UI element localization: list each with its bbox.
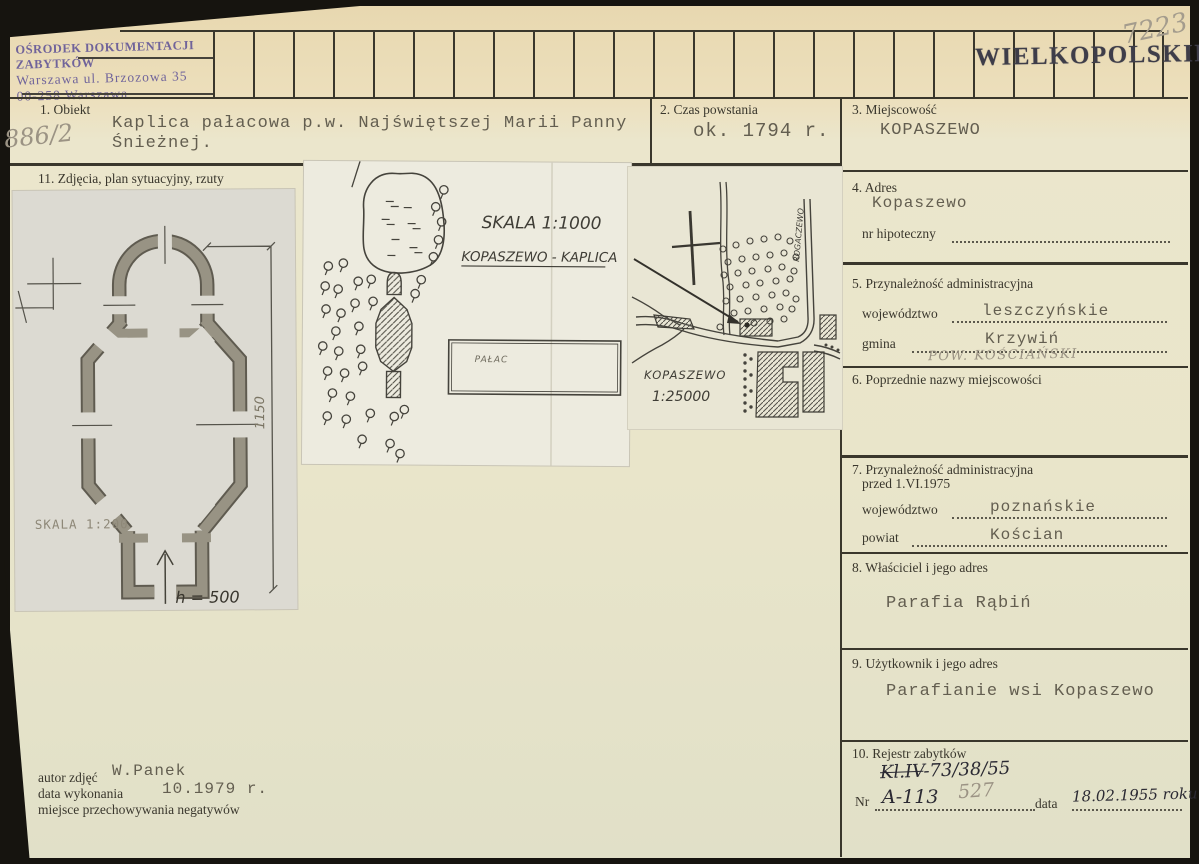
floorplan-photo-paper: 1150 SKALA 1:200 h = 500: [13, 189, 298, 611]
field-10-data-label: data: [1035, 796, 1058, 812]
field-10-nr-label: Nr: [855, 794, 869, 810]
floorplan-wall-fill: [87, 240, 241, 592]
row1-top-rule: [10, 97, 1188, 99]
siteplan-palace-outline: [448, 340, 620, 395]
stamp-field-rule-upper: [78, 57, 213, 59]
floorplan-entrance-arrow: [157, 551, 173, 604]
field-7-powiat-value: Kościan: [990, 526, 1064, 544]
floorplan-wall-outline: [87, 240, 241, 592]
voivodeship-region-stamp: WIELKOPOLSKIE: [975, 40, 1199, 72]
field-5-powiat-pencil-note: POW. KOŚCIAŃSKI: [928, 347, 1078, 365]
field-1-label: 1. Obiekt: [40, 102, 90, 118]
siteplan-drawing: PAŁAC SKALA 1:1000 KOPASZEWO - KAPLICA: [302, 161, 631, 466]
f8-bottom-rule: [840, 648, 1188, 650]
siteplan-paper: PAŁAC SKALA 1:1000 KOPASZEWO - KAPLICA: [302, 161, 631, 466]
f3-bottom-rule: [840, 170, 1188, 172]
field-9-label: 9. Użytkownik i jego adres: [852, 656, 998, 672]
stamp-field-rule-lower: [22, 93, 213, 95]
field-1-value-line2: Śnieżnej.: [112, 134, 213, 153]
negatives-location-label: miejsce przechowywania negatywów: [38, 802, 240, 818]
field-5-wojewodztwo-label: województwo: [862, 306, 938, 322]
field-3-label: 3. Miejscowość: [852, 102, 937, 118]
photo-author-value: W.Panek: [112, 762, 186, 780]
field-4-sub-label: nr hipoteczny: [862, 226, 936, 242]
siteplan-fold-crease: [550, 163, 553, 466]
siteplan-pond: [363, 173, 445, 274]
field-4-value: Kopaszewo: [872, 194, 967, 212]
siteplan-scale-label: SKALA 1:1000: [482, 213, 602, 234]
floorplan-window-gaps: [87, 241, 241, 518]
field-10-data-value: 18.02.1955 roku: [1072, 784, 1198, 805]
siteplan-pond-water-marks: [381, 201, 422, 255]
field-10-old-register-rest: -73/38/55: [923, 758, 1011, 782]
field-7-powiat-label: powiat: [862, 530, 899, 546]
map-road-label: ROGACZEWO: [792, 208, 806, 262]
f4-bottom-rule: [840, 262, 1188, 265]
map-locality-name: KOPASZEWO: [644, 368, 726, 382]
map-north-cross: [672, 211, 720, 285]
f6-bottom-rule: [840, 455, 1188, 458]
siteplan-title: KOPASZEWO - KAPLICA: [461, 249, 617, 266]
field-9-value: Parafianie wsi Kopaszewo: [886, 682, 1155, 701]
field-7-wojewodztwo-value: poznańskie: [990, 498, 1096, 516]
floorplan-height-note: h = 500: [175, 587, 239, 606]
field-10-nr-line: [875, 808, 1035, 811]
map-paper: ROGACZEWO KOPASZEWO 1:25000: [628, 167, 842, 429]
field-8-label: 8. Właściciel i jego adres: [852, 560, 988, 576]
field-5-wojewodztwo-line: [952, 320, 1167, 323]
field-11-label: 11. Zdjęcia, plan sytuacyjny, rzuty: [38, 171, 224, 187]
odz-address-stamp: OŚRODEK DOKUMENTACJI ZABYTKÓW Warszawa u…: [15, 37, 227, 104]
f9-bottom-rule: [840, 740, 1188, 742]
scanned-heritage-record-card: OŚRODEK DOKUMENTACJI ZABYTKÓW Warszawa u…: [0, 0, 1199, 864]
field-8-value: Parafia Rąbiń: [886, 594, 1032, 613]
map-chapel-dot: [744, 322, 749, 327]
siteplan-title-underline: [461, 266, 605, 267]
photo-date-value: 10.1979 r.: [162, 780, 268, 798]
field-4-dotted-line: [952, 240, 1170, 243]
field-7-powiat-line: [912, 544, 1167, 547]
divider-f1-f2: [650, 97, 652, 163]
photo-author-label: autor zdjęć: [38, 770, 98, 786]
field-10-old-register-prefix: Kl.IV: [880, 761, 924, 784]
map-pointer-arrow: [634, 259, 741, 324]
field-2-value: ok. 1794 r.: [693, 120, 829, 142]
f7-bottom-rule: [840, 552, 1188, 554]
field-7-label-line2: przed 1.VI.1975: [862, 476, 950, 492]
siteplan-palace-label: PAŁAC: [475, 355, 509, 365]
floorplan-drawing: 1150 SKALA 1:200 h = 500: [13, 189, 298, 611]
field-1-value-line1: Kaplica pałacowa p.w. Najświętszej Marii…: [112, 114, 627, 133]
field-10-data-line: [1072, 808, 1182, 811]
siteplan-chapel-footprint: [375, 272, 412, 397]
field-5-label: 5. Przynależność administracyjna: [852, 276, 1033, 292]
floorplan-scale-label: SKALA 1:200: [35, 516, 129, 532]
field-7-wojewodztwo-label: województwo: [862, 502, 938, 518]
field-10-nr-pencil-value: 527: [957, 779, 995, 803]
map-stream: [632, 182, 730, 363]
field-5-gmina-value: Krzywiń: [985, 330, 1059, 348]
field-2-label: 2. Czas powstania: [660, 102, 758, 118]
field-5-gmina-label: gmina: [862, 336, 896, 352]
field-10-nr-value: A-113: [882, 786, 938, 808]
map-scale-label: 1:25000: [652, 389, 710, 405]
field-6-label: 6. Poprzednie nazwy miejscowości: [852, 372, 1042, 388]
field-3-value: KOPASZEWO: [880, 121, 981, 140]
locality-map-drawing: ROGACZEWO KOPASZEWO 1:25000: [628, 167, 842, 429]
field-5-wojewodztwo-value: leszczyńskie: [982, 302, 1109, 320]
f5-bottom-rule: [840, 366, 1188, 368]
field-7-wojewodztwo-line: [952, 516, 1167, 519]
photo-date-label: data wykonania: [38, 786, 123, 802]
floorplan-vertical-dimension: 1150: [253, 396, 268, 429]
siteplan-stray-mark: [352, 161, 360, 187]
